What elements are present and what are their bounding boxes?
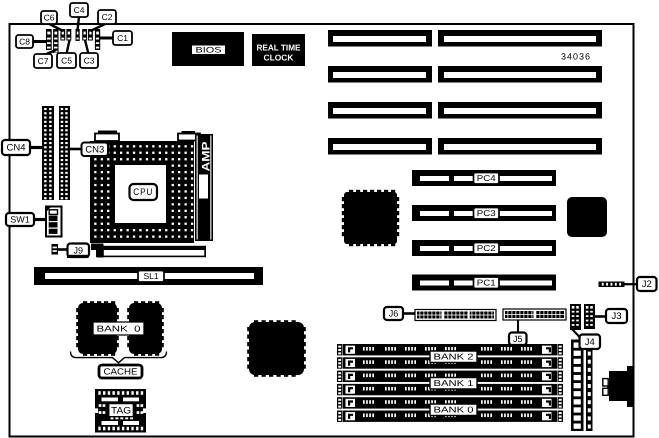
svg-text:REAL TIME: REAL TIME (257, 43, 301, 53)
svg-text:CN3: CN3 (85, 145, 104, 156)
svg-text:C7: C7 (38, 56, 49, 66)
svg-text:C3: C3 (84, 55, 95, 65)
svg-text:SW1: SW1 (10, 215, 30, 225)
svg-text:AMP: AMP (201, 142, 213, 172)
svg-text:BANK 2: BANK 2 (434, 352, 474, 362)
svg-text:BANK 0: BANK 0 (97, 323, 141, 333)
svg-text:PC4: PC4 (477, 173, 496, 183)
svg-text:C4: C4 (74, 5, 85, 15)
svg-text:CLOCK: CLOCK (264, 53, 295, 63)
svg-text:C8: C8 (19, 36, 30, 46)
svg-text:TAG: TAG (111, 405, 131, 416)
svg-text:CPU: CPU (133, 187, 153, 198)
svg-text:J5: J5 (513, 334, 523, 344)
svg-text:C5: C5 (61, 55, 72, 65)
svg-text:BIOS: BIOS (196, 46, 222, 55)
svg-text:J9: J9 (73, 245, 83, 255)
svg-text:BANK 0: BANK 0 (434, 405, 474, 415)
svg-text:C1: C1 (117, 33, 128, 43)
svg-text:PC1: PC1 (477, 278, 496, 288)
svg-text:CACHE: CACHE (104, 367, 138, 377)
svg-text:PC3: PC3 (477, 208, 496, 218)
svg-text:BANK 1: BANK 1 (434, 378, 474, 388)
svg-text:J3: J3 (611, 311, 621, 322)
svg-text:PC2: PC2 (477, 243, 496, 253)
svg-text:J4: J4 (585, 337, 595, 348)
svg-text:J2: J2 (642, 279, 652, 290)
svg-text:C2: C2 (102, 12, 113, 22)
svg-text:J6: J6 (389, 309, 399, 319)
svg-text:CN4: CN4 (6, 143, 25, 154)
svg-text:34036: 34036 (561, 52, 591, 62)
svg-text:C6: C6 (44, 12, 55, 22)
svg-text:SL1: SL1 (143, 271, 158, 281)
